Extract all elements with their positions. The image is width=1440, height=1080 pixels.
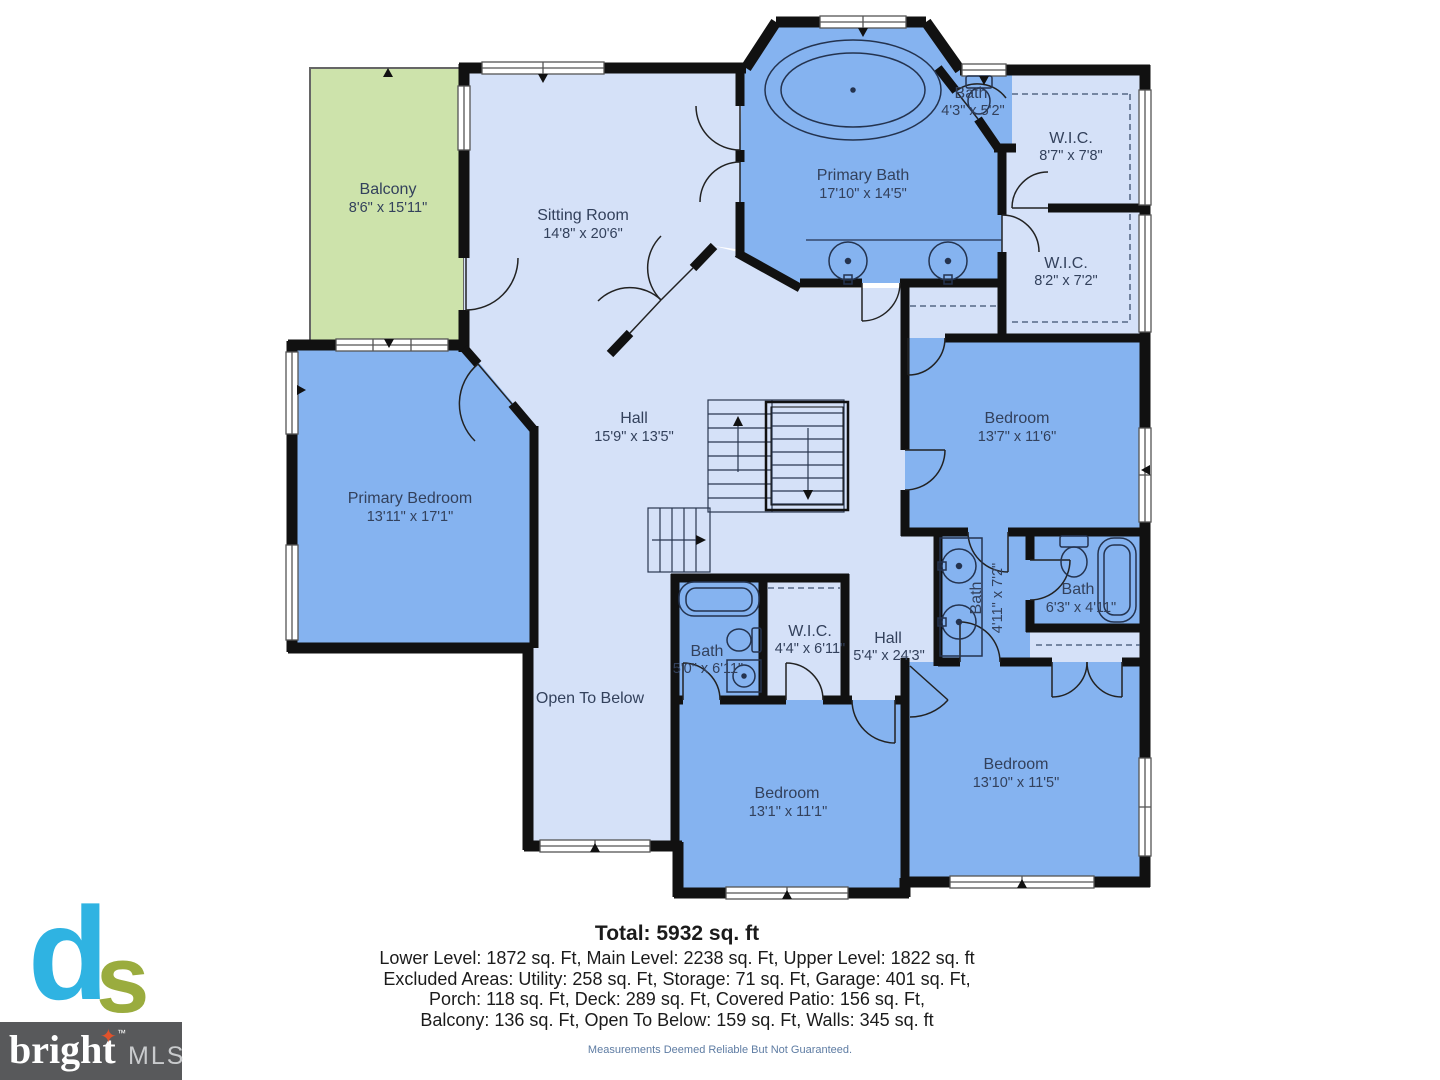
logo-star-icon: ✦ xyxy=(100,1024,117,1049)
summary-line-porch: Porch: 118 sq. Ft, Deck: 289 sq. Ft, Cov… xyxy=(377,989,977,1010)
room-label-bedroom-2: Bedroom xyxy=(755,785,820,802)
room-label-hall-lower: Hall xyxy=(874,630,902,647)
room-dims-bath-jj: 4'11" x 7'2" xyxy=(990,563,1006,633)
room-label-hall-upper: Hall xyxy=(620,410,648,427)
room-label-primary-bedroom: Primary Bedroom xyxy=(348,490,472,507)
window xyxy=(286,545,298,640)
floor-plan: Balcony 8'6" x 15'11" Sitting Room 14'8"… xyxy=(0,0,1440,1080)
room-label-wic-2: W.I.C. xyxy=(1044,255,1088,272)
logo-s-mark: s xyxy=(96,932,149,1028)
summary-line-levels: Lower Level: 1872 sq. Ft, Main Level: 22… xyxy=(377,948,977,969)
room-label-wic-1: W.I.C. xyxy=(1049,130,1093,147)
total-area: Total: 5932 sq. ft xyxy=(377,922,977,946)
floorplan-page: Balcony 8'6" x 15'11" Sitting Room 14'8"… xyxy=(0,0,1440,1080)
summary-line-excluded: Excluded Areas: Utility: 258 sq. Ft, Sto… xyxy=(377,969,977,990)
logo-trademark: ™ xyxy=(117,1028,126,1038)
room-dims-bath-right: 6'3" x 4'11" xyxy=(1046,600,1116,616)
window xyxy=(1139,428,1151,522)
summary-line-balcony: Balcony: 136 sq. Ft, Open To Below: 159 … xyxy=(377,1010,977,1031)
room-label-bedroom-1: Bedroom xyxy=(985,410,1050,427)
window xyxy=(820,16,906,28)
area-summary: Total: 5932 sq. ft Lower Level: 1872 sq.… xyxy=(377,922,977,1030)
room-dims-wic-1: 8'7" x 7'8" xyxy=(1039,148,1102,164)
room-dims-hall-upper: 15'9" x 13'5" xyxy=(594,429,674,445)
room-dims-primary-bedroom: 13'11" x 17'1" xyxy=(367,509,454,525)
room-dims-bath-left: 5'0" x 6'11" xyxy=(673,661,743,677)
logo-mls-text: MLS xyxy=(128,1042,185,1071)
window xyxy=(962,64,1006,76)
room-label-open-to-below: Open To Below xyxy=(536,690,645,707)
closet-area xyxy=(905,283,1002,338)
disclaimer-text: Measurements Deemed Reliable But Not Gua… xyxy=(420,1044,1020,1056)
room-label-bath-left: Bath xyxy=(691,643,724,660)
room-dims-wic-3: 4'4" x 6'11" xyxy=(775,641,845,657)
room-label-wic-3: W.I.C. xyxy=(788,623,832,640)
room-label-bath-right: Bath xyxy=(1062,581,1095,598)
logo-band: bright ✦ ™ MLS xyxy=(0,1022,182,1080)
room-label-primary-bath: Primary Bath xyxy=(817,167,909,184)
room-dims-wic-2: 8'2" x 7'2" xyxy=(1034,273,1097,289)
room-label-bath-jj: Bath xyxy=(968,582,985,615)
room-dims-hall-lower: 5'4" x 24'3" xyxy=(853,648,924,664)
room-label-bath-top: Bath xyxy=(955,85,988,102)
window xyxy=(1139,90,1151,205)
room-dims-primary-bath: 17'10" x 14'5" xyxy=(819,186,907,202)
room-dims-sitting-room: 14'8" x 20'6" xyxy=(543,226,623,242)
window xyxy=(458,86,470,150)
window xyxy=(482,62,604,74)
window xyxy=(1139,215,1151,332)
room-dims-bedroom-3: 13'10" x 11'5" xyxy=(973,775,1060,791)
room-dims-bath-top: 4'3" x 5'2" xyxy=(941,103,1004,119)
room-dims-bedroom-2: 13'1" x 11'1" xyxy=(749,804,827,820)
brightmls-logo: d s bright ✦ ™ MLS xyxy=(0,940,200,1080)
room-label-bedroom-3: Bedroom xyxy=(984,756,1049,773)
room-dims-bedroom-1: 13'7" x 11'6" xyxy=(978,429,1056,445)
bath-left-area xyxy=(675,578,763,700)
window xyxy=(1139,758,1151,856)
room-label-sitting-room: Sitting Room xyxy=(537,207,629,224)
window xyxy=(286,352,298,434)
room-label-balcony: Balcony xyxy=(360,181,417,198)
room-dims-balcony: 8'6" x 15'11" xyxy=(349,200,427,216)
